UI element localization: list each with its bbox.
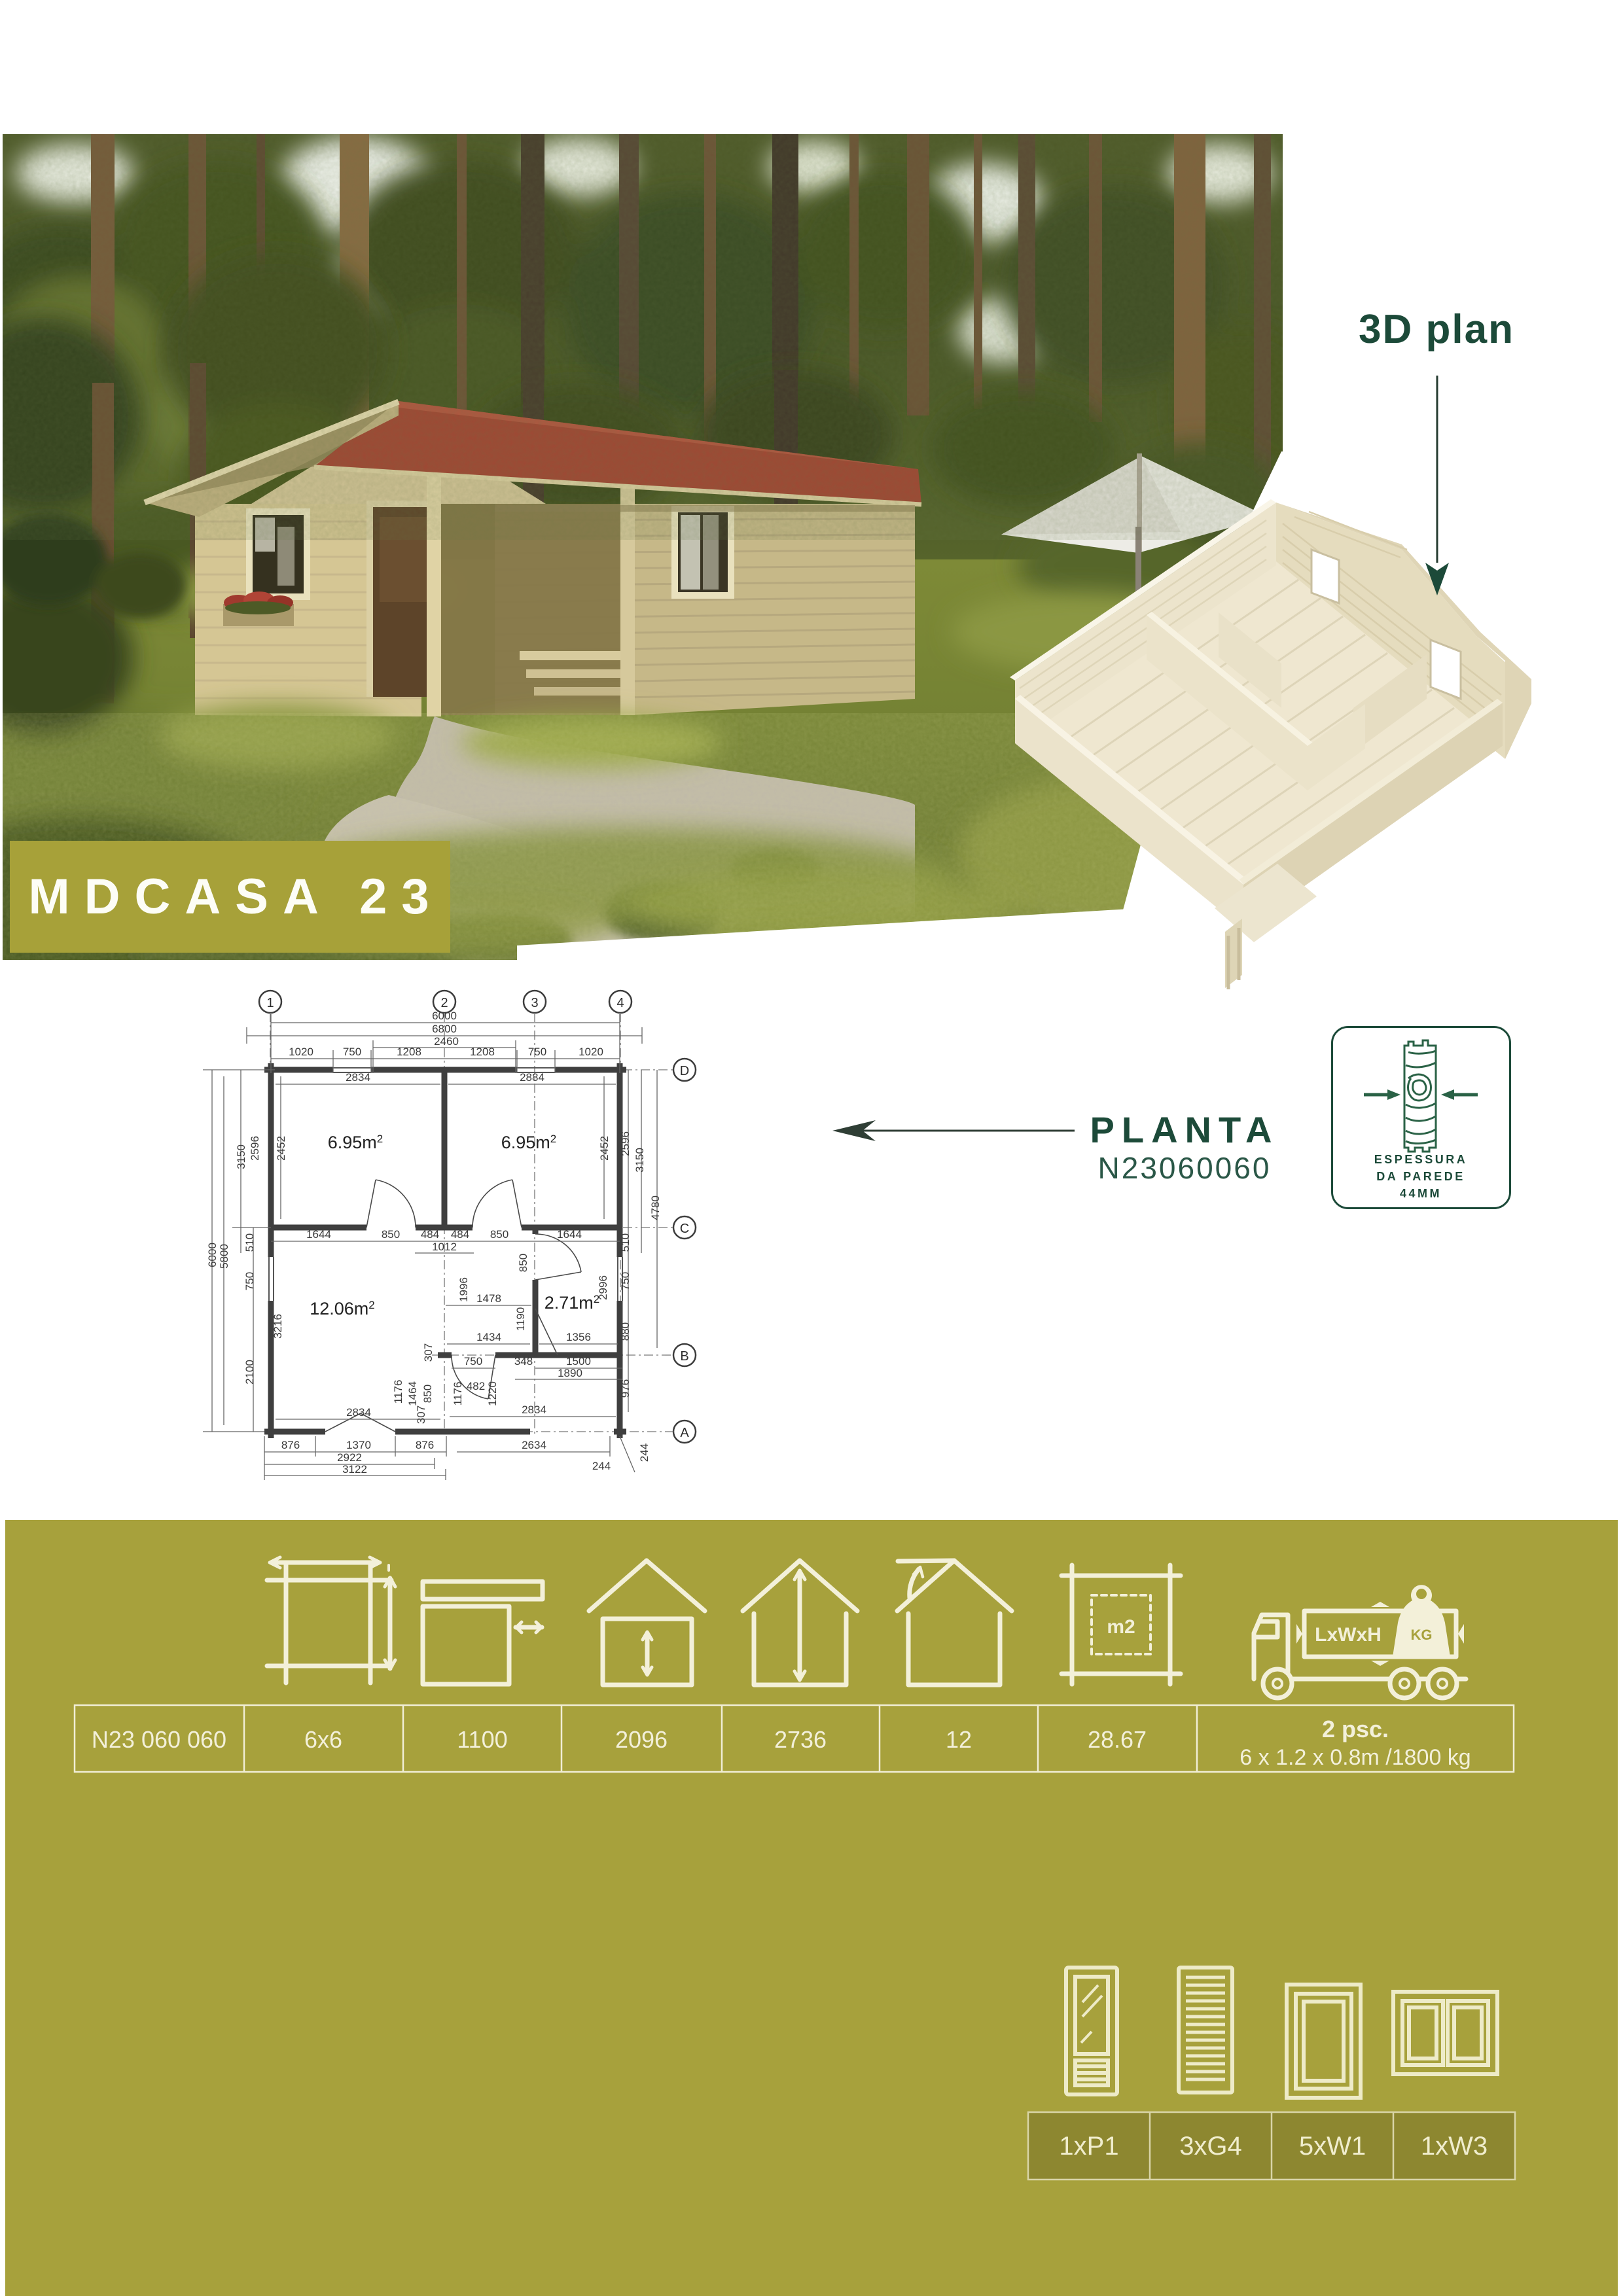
svg-text:1478: 1478	[476, 1292, 501, 1305]
svg-text:510: 510	[619, 1233, 632, 1252]
svg-text:N23 060 060: N23 060 060	[92, 1726, 226, 1753]
svg-text:880: 880	[619, 1322, 632, 1341]
svg-text:2452: 2452	[598, 1136, 611, 1161]
svg-text:2 psc.: 2 psc.	[1322, 1716, 1389, 1742]
svg-text:6x6: 6x6	[304, 1726, 342, 1753]
svg-text:D: D	[680, 1064, 689, 1078]
svg-text:B: B	[680, 1349, 688, 1364]
svg-text:6000: 6000	[206, 1243, 219, 1267]
svg-text:4780: 4780	[649, 1195, 662, 1220]
svg-text:6000: 6000	[432, 1010, 457, 1022]
svg-text:1356: 1356	[566, 1331, 591, 1343]
svg-text:750: 750	[243, 1272, 256, 1290]
svg-text:3150: 3150	[235, 1144, 247, 1169]
svg-text:2834: 2834	[522, 1404, 546, 1416]
svg-text:1500: 1500	[566, 1355, 591, 1368]
svg-text:1176: 1176	[392, 1380, 404, 1404]
svg-text:2736: 2736	[774, 1726, 827, 1753]
svg-text:3122: 3122	[342, 1463, 367, 1475]
svg-text:2834: 2834	[346, 1406, 371, 1419]
svg-text:1190: 1190	[514, 1307, 527, 1332]
svg-text:850: 850	[490, 1228, 508, 1241]
svg-text:m2: m2	[1107, 1616, 1135, 1638]
svg-text:750: 750	[343, 1046, 361, 1058]
svg-text:28.67: 28.67	[1088, 1726, 1147, 1753]
svg-text:C: C	[680, 1222, 689, 1236]
svg-text:4: 4	[616, 996, 624, 1010]
svg-text:1644: 1644	[557, 1228, 582, 1241]
svg-text:2460: 2460	[434, 1035, 459, 1048]
svg-text:1100: 1100	[457, 1726, 507, 1753]
svg-text:3150: 3150	[633, 1148, 646, 1173]
svg-text:2634: 2634	[522, 1439, 546, 1451]
svg-text:850: 850	[421, 1385, 434, 1403]
svg-text:44MM: 44MM	[1400, 1187, 1442, 1200]
svg-text:6.95m2: 6.95m2	[328, 1133, 383, 1152]
svg-text:750: 750	[619, 1272, 632, 1290]
svg-text:6.95m2: 6.95m2	[501, 1133, 557, 1152]
svg-text:2922: 2922	[337, 1451, 362, 1464]
svg-text:1996: 1996	[457, 1277, 470, 1302]
svg-text:6 x 1.2 x 0.8m /1800 kg: 6 x 1.2 x 0.8m /1800 kg	[1240, 1745, 1471, 1770]
svg-text:2.71m2: 2.71m2	[544, 1293, 600, 1313]
svg-text:1: 1	[266, 996, 274, 1010]
svg-text:6800: 6800	[432, 1023, 457, 1035]
svg-text:DA PAREDE: DA PAREDE	[1376, 1170, 1465, 1183]
svg-text:5xW1: 5xW1	[1299, 2132, 1366, 2161]
svg-text:510: 510	[243, 1233, 256, 1252]
svg-text:ESPESSURA: ESPESSURA	[1374, 1153, 1468, 1166]
svg-text:348: 348	[514, 1355, 533, 1368]
svg-text:1012: 1012	[432, 1241, 457, 1253]
svg-text:3xG4: 3xG4	[1179, 2132, 1242, 2161]
svg-text:2452: 2452	[275, 1136, 287, 1161]
svg-text:2096: 2096	[615, 1726, 668, 1753]
svg-text:5800: 5800	[218, 1244, 230, 1269]
svg-text:307: 307	[422, 1343, 435, 1362]
svg-text:1890: 1890	[558, 1367, 582, 1379]
svg-text:KG: KG	[1411, 1627, 1433, 1643]
svg-text:876: 876	[281, 1439, 300, 1451]
svg-text:2596: 2596	[619, 1131, 632, 1156]
svg-text:876: 876	[416, 1439, 434, 1451]
svg-text:3216: 3216	[272, 1314, 284, 1339]
svg-text:2: 2	[440, 996, 448, 1010]
svg-text:1xP1: 1xP1	[1059, 2132, 1118, 2161]
svg-text:850: 850	[382, 1228, 400, 1241]
svg-text:1370: 1370	[346, 1439, 371, 1451]
svg-text:1xW3: 1xW3	[1421, 2132, 1488, 2161]
svg-text:2834: 2834	[346, 1071, 370, 1084]
svg-text:1020: 1020	[579, 1046, 603, 1058]
svg-text:A: A	[680, 1426, 689, 1440]
svg-text:750: 750	[464, 1355, 482, 1368]
svg-text:1464: 1464	[406, 1381, 419, 1406]
svg-text:850: 850	[517, 1254, 529, 1272]
svg-text:976: 976	[619, 1379, 632, 1398]
svg-text:307: 307	[415, 1405, 427, 1424]
svg-text:2100: 2100	[243, 1360, 256, 1385]
svg-text:2884: 2884	[520, 1071, 544, 1084]
svg-text:LxWxH: LxWxH	[1315, 1624, 1382, 1646]
svg-text:3: 3	[531, 996, 538, 1010]
svg-text:1434: 1434	[476, 1331, 501, 1343]
svg-text:482: 482	[467, 1380, 485, 1392]
svg-text:750: 750	[528, 1046, 546, 1058]
svg-text:244: 244	[638, 1443, 651, 1462]
svg-text:484: 484	[451, 1228, 469, 1241]
svg-text:1020: 1020	[289, 1046, 313, 1058]
svg-text:2596: 2596	[249, 1136, 261, 1161]
svg-text:484: 484	[421, 1228, 439, 1241]
svg-text:12: 12	[946, 1726, 972, 1753]
svg-text:1208: 1208	[470, 1046, 495, 1058]
svg-text:1176: 1176	[452, 1382, 464, 1406]
svg-text:244: 244	[592, 1460, 611, 1472]
svg-text:1644: 1644	[306, 1228, 331, 1241]
svg-text:12.06m2: 12.06m2	[310, 1299, 375, 1318]
svg-text:1220: 1220	[486, 1381, 499, 1406]
svg-text:1208: 1208	[397, 1046, 421, 1058]
